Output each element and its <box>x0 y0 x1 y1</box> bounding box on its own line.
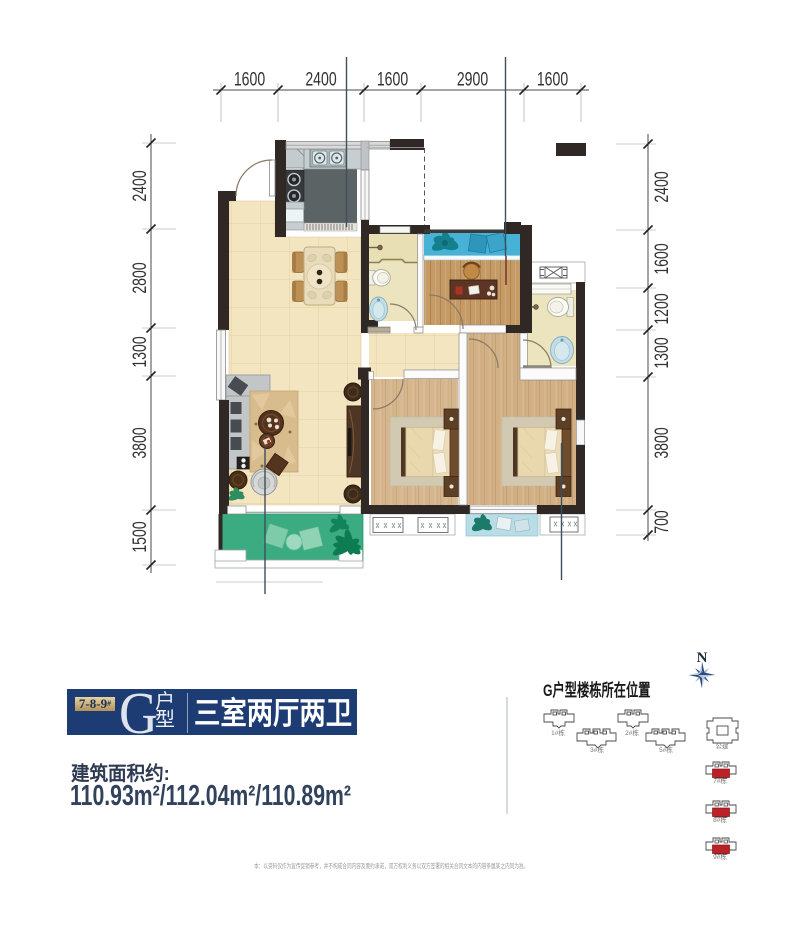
svg-text:1600: 1600 <box>651 243 673 274</box>
svg-text:1300: 1300 <box>129 336 151 367</box>
svg-text:3800: 3800 <box>129 427 151 458</box>
svg-text:公建: 公建 <box>716 741 730 750</box>
svg-text:2800: 2800 <box>129 262 151 293</box>
svg-text:2#栋: 2#栋 <box>625 728 639 737</box>
svg-text:9#栋: 9#栋 <box>713 852 727 861</box>
svg-text:5#栋: 5#栋 <box>659 745 673 754</box>
svg-text:1#栋: 1#栋 <box>551 728 565 737</box>
svg-text:1600: 1600 <box>234 68 265 90</box>
svg-text:1300: 1300 <box>651 337 673 368</box>
svg-text:2400: 2400 <box>129 170 151 201</box>
svg-text:1200: 1200 <box>651 293 673 324</box>
svg-text:1500: 1500 <box>129 521 151 552</box>
svg-text:3800: 3800 <box>651 427 673 458</box>
svg-text:2400: 2400 <box>305 68 336 90</box>
svg-text:1600: 1600 <box>377 68 408 90</box>
svg-text:2900: 2900 <box>457 68 488 90</box>
svg-text:7#栋: 7#栋 <box>713 776 727 785</box>
svg-text:700: 700 <box>651 510 673 533</box>
svg-text:3#栋: 3#栋 <box>590 745 604 754</box>
svg-text:1600: 1600 <box>537 68 568 90</box>
svg-text:8#栋: 8#栋 <box>713 815 727 824</box>
svg-text:2400: 2400 <box>651 171 673 202</box>
